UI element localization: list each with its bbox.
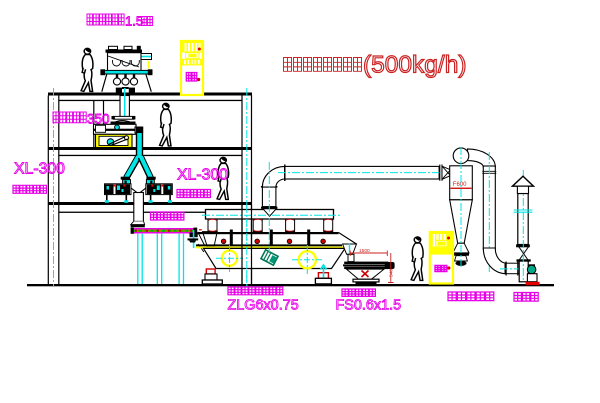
svg-text:(500kg/h): (500kg/h) (363, 52, 467, 79)
svg-text:ZLG6x0.75: ZLG6x0.75 (228, 298, 299, 314)
svg-text:FS0.6x1.5: FS0.6x1.5 (336, 298, 402, 314)
svg-text:F600: F600 (453, 182, 467, 188)
svg-text:1500: 1500 (359, 248, 370, 254)
svg-text:548: 548 (388, 269, 394, 277)
svg-text:1.5: 1.5 (125, 14, 143, 29)
svg-text:XL-300: XL-300 (177, 167, 228, 184)
svg-text:XL-300: XL-300 (14, 161, 65, 178)
